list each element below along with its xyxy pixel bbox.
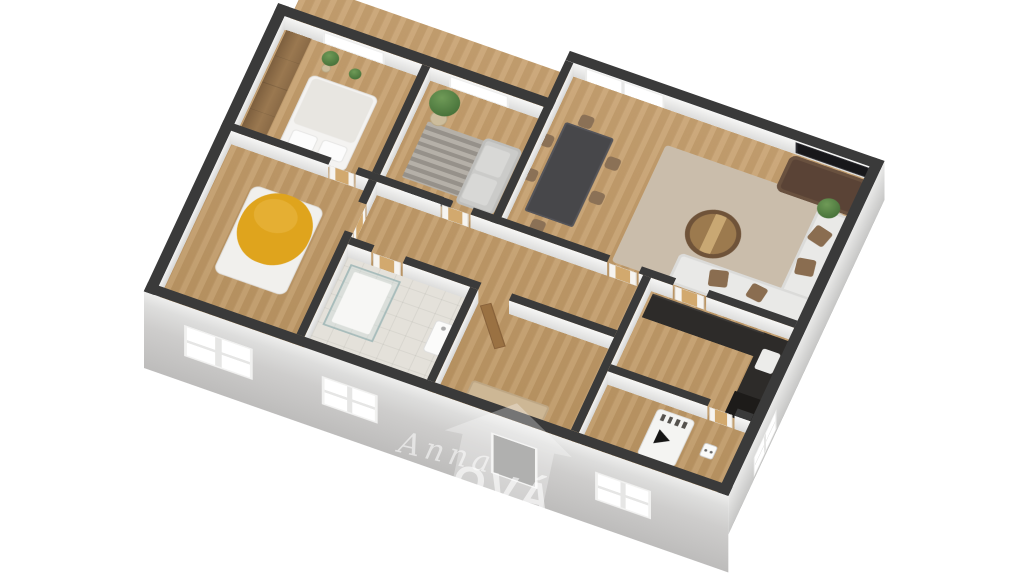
faucet-icon	[440, 326, 446, 331]
apartment-3d-plan	[140, 0, 893, 520]
boiler-vents	[660, 414, 690, 430]
sofa-pillow	[708, 269, 730, 288]
floorplan-render: Anna OVÁ	[0, 0, 1024, 576]
sofa-cushion	[461, 173, 498, 207]
entry-door-exterior	[491, 432, 538, 489]
socket-dots	[704, 449, 708, 452]
exterior-window	[595, 472, 651, 520]
sofa-pillow	[794, 257, 817, 277]
exterior-window	[184, 325, 252, 380]
boiler-triangle-icon	[653, 429, 673, 448]
blanket-highlight	[248, 193, 304, 239]
sofa-cushion	[474, 145, 511, 179]
exterior-window	[322, 376, 378, 424]
